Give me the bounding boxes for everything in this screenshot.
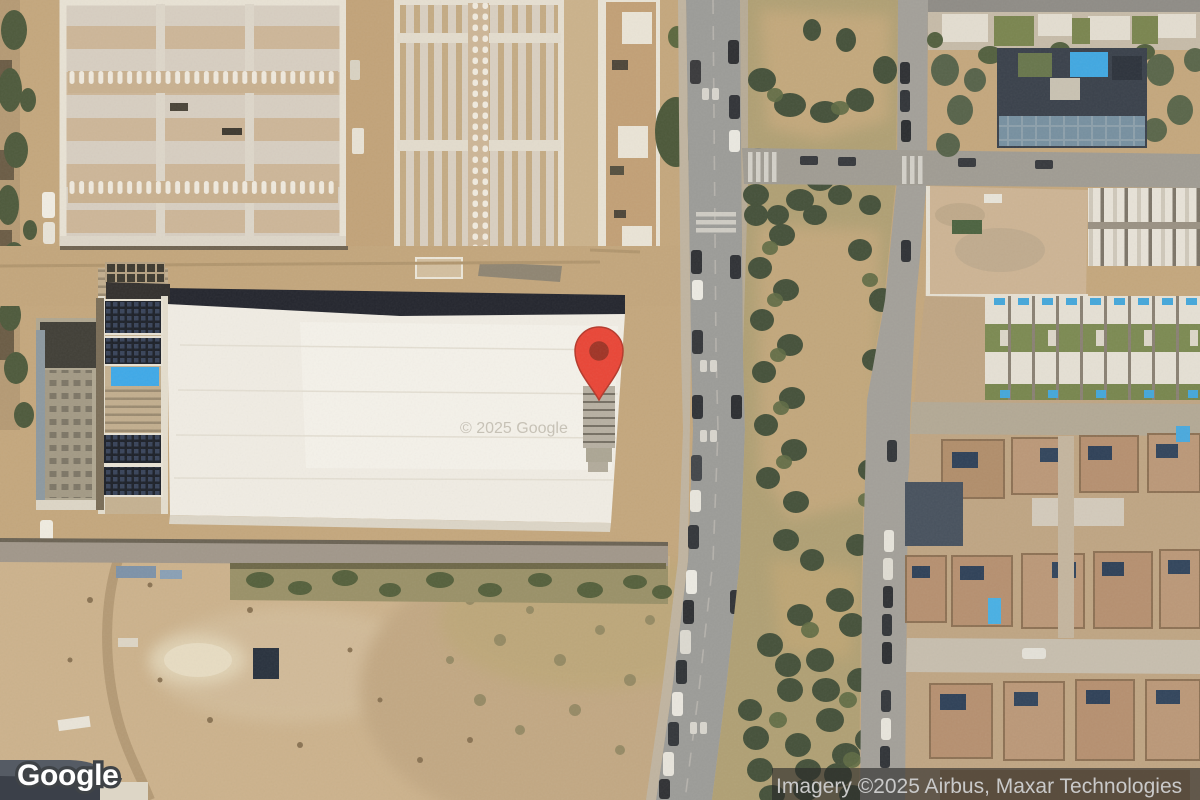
svg-text:Imagery ©2025 Airbus, Maxar Te: Imagery ©2025 Airbus, Maxar Technologies [776,775,1182,798]
svg-text:Google: Google [17,759,119,792]
